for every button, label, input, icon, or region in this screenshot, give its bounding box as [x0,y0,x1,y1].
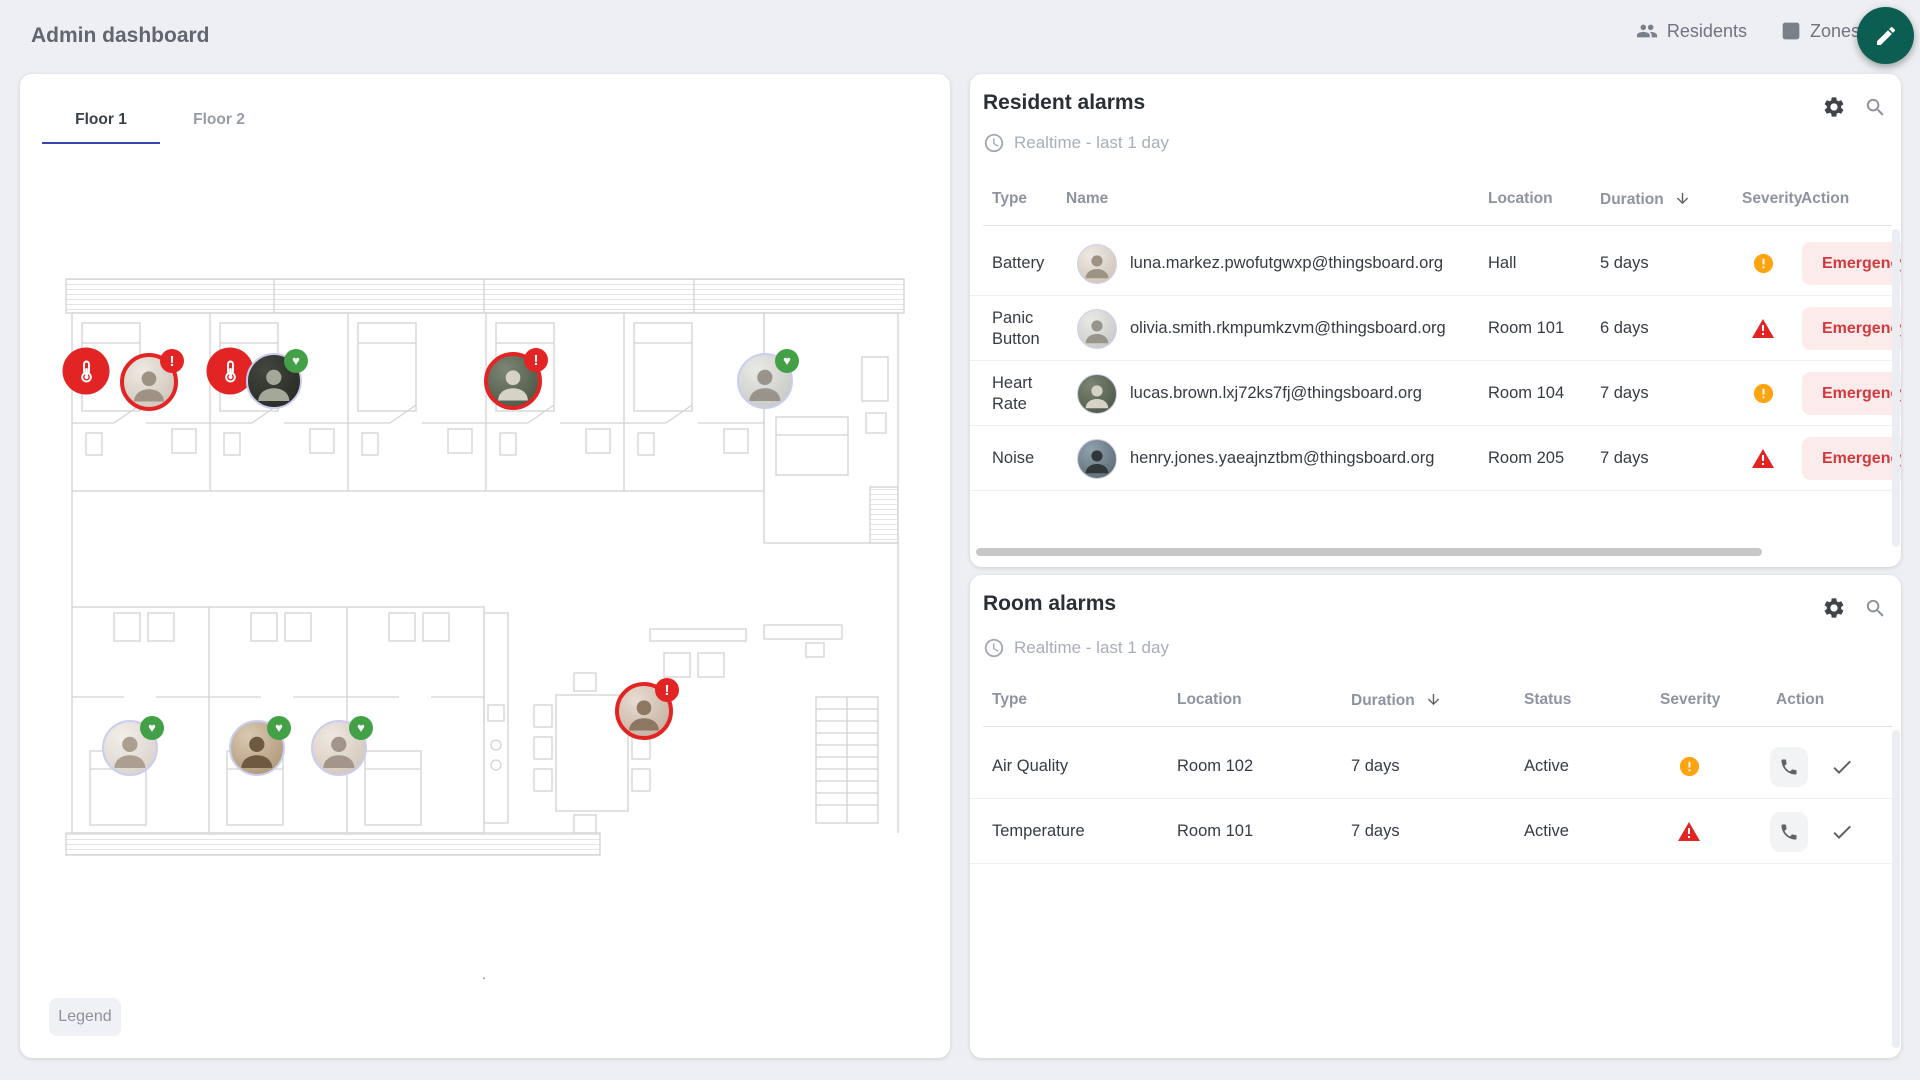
warning-severity-icon [1678,755,1701,778]
tab-floor-1[interactable]: Floor 1 [42,95,160,144]
alarm-type: Temperature [992,799,1142,864]
heart-badge-icon: ♥ [349,716,373,740]
resident-marker[interactable]: ♥ [102,720,158,776]
alarm-duration: 7 days [1351,799,1461,864]
floorplan-markers: ! ♥ ! ♥ ♥ [64,277,906,857]
thermometer-icon [73,358,99,384]
emergency-button[interactable]: Emergency [1802,242,1901,285]
room-alarm-row: Air Quality Room 102 7 days Active [970,734,1901,799]
resident-marker[interactable]: ! [484,352,542,410]
resident-marker[interactable]: ! [120,353,178,411]
warning-severity-icon [1752,382,1775,405]
alarm-duration: 7 days [1600,361,1690,426]
alarm-location: Room 104 [1488,361,1588,426]
zones-button[interactable]: Zones [1781,21,1860,42]
resident-marker[interactable]: ♥ [311,720,367,776]
avatar [1077,374,1117,414]
timewindow-label: Realtime - last 1 day [1014,133,1169,153]
col-type[interactable]: Type [992,190,1027,208]
page-title: Admin dashboard [31,24,210,48]
alarm-location: Room 101 [1177,799,1307,864]
alert-badge-icon: ! [160,349,184,373]
heart-badge-icon: ♥ [140,716,164,740]
col-status[interactable]: Status [1524,691,1571,709]
search-icon [1864,96,1887,119]
thermometer-icon [217,358,243,384]
resident-alarm-row: Noise henry.jones.yaeajnztbm@thingsboard… [970,426,1901,491]
clock-icon [983,132,1005,154]
alarm-duration: 7 days [1600,426,1690,491]
alarm-type: Battery [992,231,1070,296]
resident-alarms-card: Resident alarms Realtime - last 1 day Ty… [970,74,1901,567]
gear-icon [1822,95,1846,119]
topbar-actions: Residents Zones [1636,20,1860,42]
room-alarms-card: Room alarms Realtime - last 1 day Type L… [970,575,1901,1058]
alarm-type: Air Quality [992,734,1142,799]
call-button[interactable] [1770,812,1808,852]
pencil-icon [1874,24,1898,48]
temperature-sensor-marker[interactable] [63,348,110,395]
critical-severity-icon [1751,317,1775,341]
legend-button[interactable]: Legend [49,998,121,1036]
search-icon [1864,597,1887,620]
acknowledge-button[interactable] [1830,755,1854,779]
resident-marker[interactable]: ! [615,682,673,740]
vertical-scrollbar[interactable] [1892,229,1900,547]
residents-button[interactable]: Residents [1636,20,1747,42]
avatar [1077,439,1117,479]
col-severity[interactable]: Severity [1742,190,1802,208]
resident-alarm-row: Panic Button olivia.smith.rkmpumkzvm@thi… [970,296,1901,361]
search-button[interactable] [1864,596,1887,620]
top-bar: Admin dashboard Residents Zones [0,0,1920,73]
zones-button-label: Zones [1810,21,1860,42]
header-separator [983,225,1892,226]
emergency-button[interactable]: Emergency [1802,437,1901,480]
timewindow-button[interactable]: Realtime - last 1 day [983,637,1169,659]
edit-dashboard-fab[interactable] [1857,7,1914,64]
resident-alarm-row: Battery luna.markez.pwofutgwxp@thingsboa… [970,231,1901,296]
settings-button[interactable] [1822,596,1846,620]
acknowledge-button[interactable] [1830,820,1854,844]
col-location[interactable]: Location [1488,190,1553,208]
residents-button-label: Residents [1667,21,1747,42]
sort-desc-icon [1425,691,1442,713]
emergency-button[interactable]: Emergency [1802,307,1901,350]
col-duration[interactable]: Duration [1351,691,1442,713]
phone-icon [1779,757,1799,777]
alarm-location: Hall [1488,231,1588,296]
resident-alarms-title: Resident alarms [983,91,1145,115]
people-icon [1636,20,1658,42]
resident-email: henry.jones.yaeajnztbm@thingsboard.org [1130,426,1480,491]
check-icon [1830,820,1854,844]
vertical-scrollbar[interactable] [1892,730,1900,1048]
alert-badge-icon: ! [524,348,548,372]
col-action[interactable]: Action [1801,190,1849,208]
alarm-duration: 6 days [1600,296,1690,361]
resident-email: lucas.brown.lxj72ks7fj@thingsboard.org [1130,361,1480,426]
alarm-type: Heart Rate [992,361,1070,426]
alert-badge-icon: ! [655,678,679,702]
gear-icon [1822,596,1846,620]
alarm-status: Active [1524,799,1624,864]
sort-desc-icon [1674,190,1691,212]
alarm-location: Room 102 [1177,734,1307,799]
alarm-duration: 7 days [1351,734,1461,799]
alarm-status: Active [1524,734,1624,799]
phone-icon [1779,822,1799,842]
timewindow-button[interactable]: Realtime - last 1 day [983,132,1169,154]
alarm-duration: 5 days [1600,231,1690,296]
zones-icon [1781,21,1801,41]
resident-email: olivia.smith.rkmpumkzvm@thingsboard.org [1130,296,1480,361]
call-button[interactable] [1770,747,1808,787]
tab-floor-2[interactable]: Floor 2 [160,95,278,144]
room-alarm-row: Temperature Room 101 7 days Active [970,799,1901,864]
resident-marker[interactable]: ♥ [229,720,285,776]
room-alarms-title: Room alarms [983,592,1116,616]
resident-marker[interactable]: ♥ [246,353,302,409]
alarm-type: Noise [992,426,1070,491]
alarm-location: Room 205 [1488,426,1588,491]
col-duration[interactable]: Duration [1600,190,1691,212]
col-severity[interactable]: Severity [1660,691,1720,709]
header-separator [983,726,1892,727]
search-button[interactable] [1864,95,1887,119]
emergency-button[interactable]: Emergency [1802,372,1901,415]
floorplan-dot: . [482,966,486,982]
check-icon [1830,755,1854,779]
col-type[interactable]: Type [992,691,1027,709]
floor-plan-card: Floor 1 Floor 2 [20,74,950,1058]
resident-marker[interactable]: ♥ [737,353,793,409]
resident-alarm-row: Heart Rate lucas.brown.lxj72ks7fj@things… [970,361,1901,426]
critical-severity-icon [1751,447,1775,471]
heart-badge-icon: ♥ [284,349,308,373]
col-name[interactable]: Name [1066,190,1108,208]
col-action[interactable]: Action [1776,691,1824,709]
timewindow-label: Realtime - last 1 day [1014,638,1169,658]
warning-severity-icon [1752,252,1775,275]
avatar [1077,244,1117,284]
alarm-location: Room 101 [1488,296,1588,361]
resident-email: luna.markez.pwofutgwxp@thingsboard.org [1130,231,1480,296]
heart-badge-icon: ♥ [775,349,799,373]
critical-severity-icon [1677,820,1701,844]
heart-badge-icon: ♥ [267,716,291,740]
horizontal-scrollbar[interactable] [976,548,1762,556]
floor-plan: ! ♥ ! ♥ ♥ [64,277,906,857]
settings-button[interactable] [1822,95,1846,119]
alarm-type: Panic Button [992,296,1070,361]
col-location[interactable]: Location [1177,691,1242,709]
clock-icon [983,637,1005,659]
floor-tabs: Floor 1 Floor 2 [42,95,278,144]
avatar [1077,309,1117,349]
